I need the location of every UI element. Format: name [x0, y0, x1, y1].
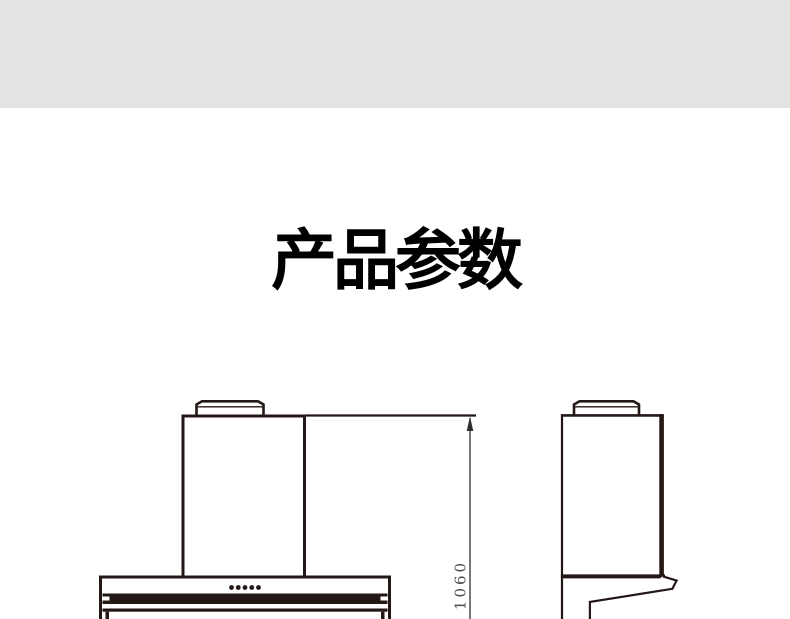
control-dot	[229, 585, 234, 590]
control-dot	[243, 585, 248, 590]
front-panel-notch-left	[103, 597, 110, 601]
front-view	[101, 401, 390, 619]
front-inner-leg-left	[106, 612, 110, 619]
side-duct-cap	[574, 401, 639, 415]
side-hood-underside	[590, 576, 677, 619]
control-dot	[236, 585, 241, 590]
front-inner-leg-right	[381, 612, 385, 619]
front-chimney	[183, 416, 305, 576]
product-parameters-section: 产品参数	[0, 0, 790, 619]
side-view	[561, 401, 677, 619]
front-panel-notch-right	[381, 597, 388, 601]
control-dot	[256, 585, 261, 590]
front-duct-cap	[197, 401, 264, 415]
control-dot	[249, 585, 254, 590]
dimension-arrow-up-icon	[467, 417, 474, 432]
front-glass-panel-band	[103, 594, 388, 605]
dimension-height-label: 1060	[452, 560, 470, 610]
dimension-diagram: 1060	[0, 0, 790, 619]
front-bottom-rail	[103, 609, 388, 612]
